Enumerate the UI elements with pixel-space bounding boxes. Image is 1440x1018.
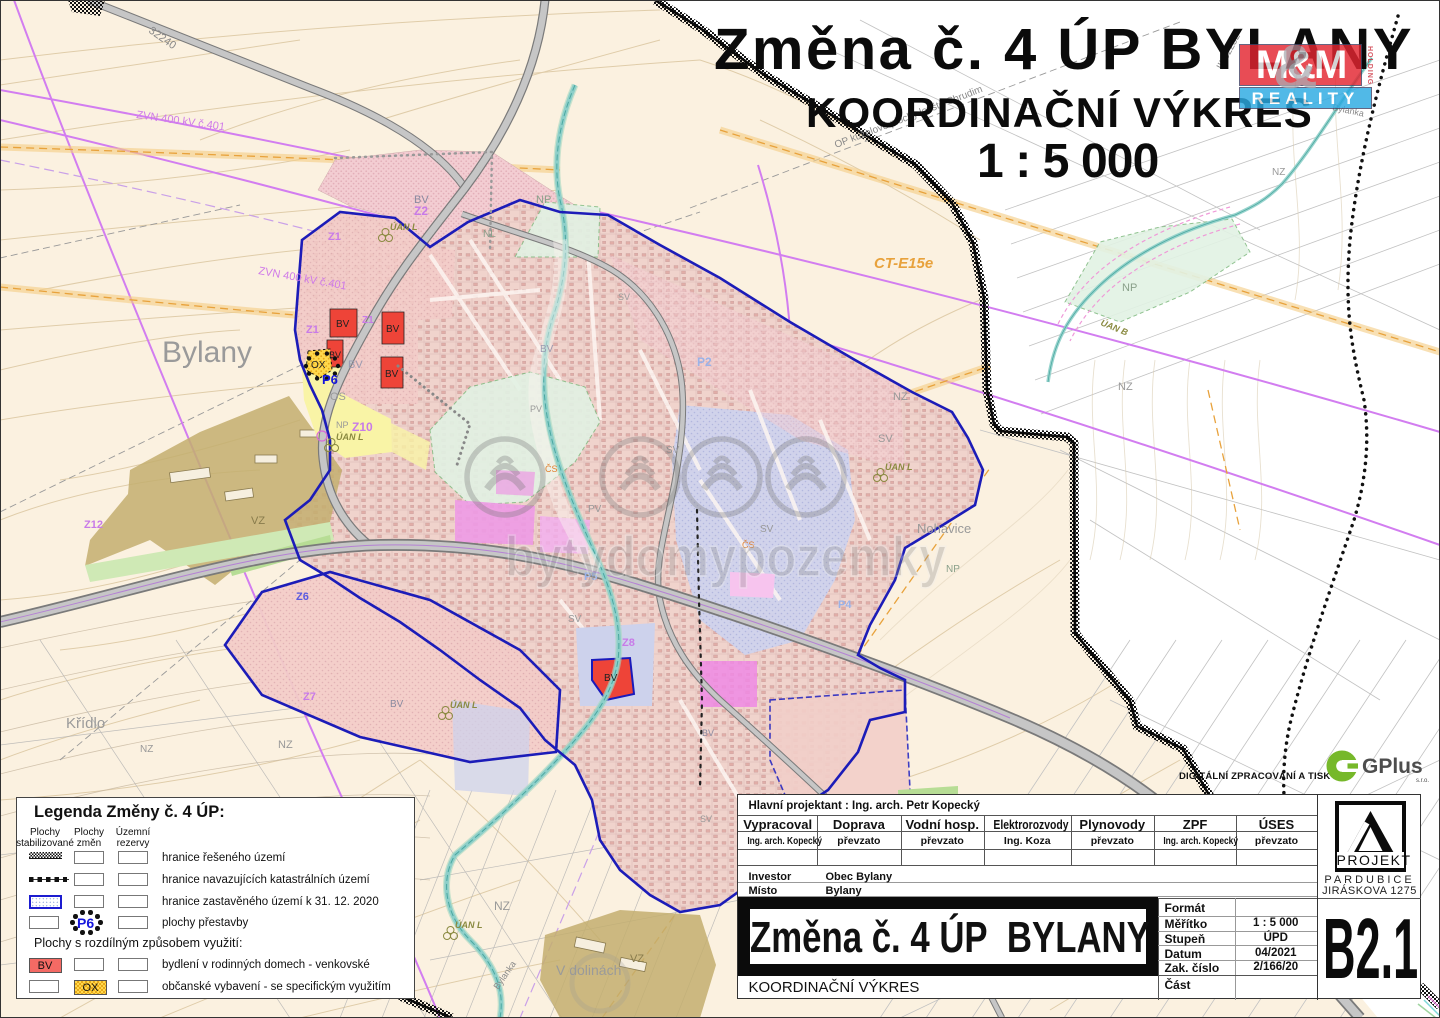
- svg-text:GPlus: GPlus: [1362, 755, 1423, 778]
- svg-text:s.r.o.: s.r.o.: [1416, 778, 1429, 784]
